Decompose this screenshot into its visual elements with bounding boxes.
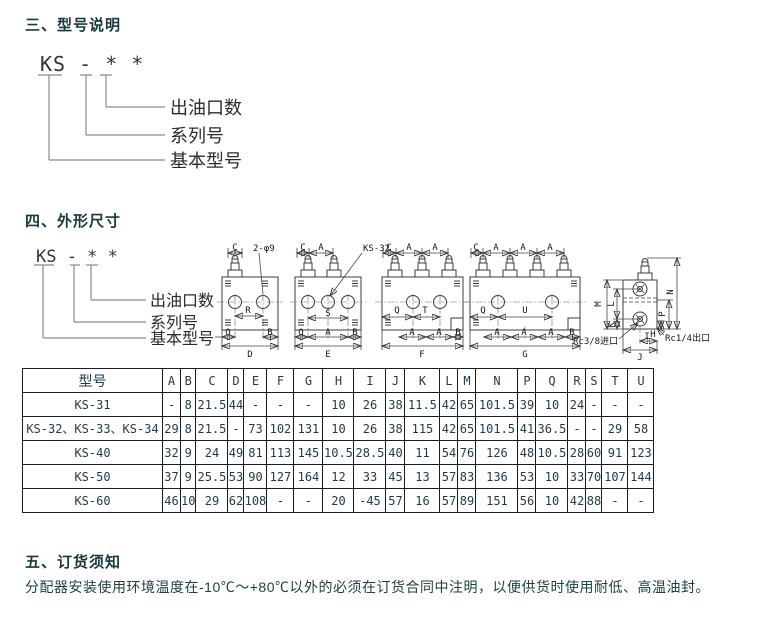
dimension-cell: 9 bbox=[181, 441, 196, 465]
drawing-ks34-front: C A A A Q U A A A B G bbox=[463, 243, 587, 360]
dim-label-q: Q bbox=[225, 328, 230, 338]
label-base-model: 基本型号 bbox=[150, 330, 214, 348]
column-header: G bbox=[294, 369, 323, 393]
dimension-cell: 101.5 bbox=[476, 417, 518, 441]
dimension-cell: 21.5 bbox=[196, 393, 228, 417]
dim-label-f: F bbox=[419, 350, 424, 360]
section-3-heading: 三、型号说明 bbox=[25, 14, 121, 35]
dim-label-u: U bbox=[522, 306, 527, 316]
dimension-drawings: C 2-φ9 R Q B D C A bbox=[215, 238, 781, 363]
dimension-cell: 115 bbox=[405, 417, 440, 441]
dim-label-a: A bbox=[406, 243, 412, 253]
label-series-number: 系列号 bbox=[170, 126, 224, 146]
dim-label-b: B bbox=[455, 328, 460, 338]
dimension-cell: 65 bbox=[458, 393, 476, 417]
dim-label-h: H bbox=[650, 330, 655, 340]
dimension-cell: 9 bbox=[181, 465, 196, 489]
drawing-ks31-front: C 2-φ9 R Q B D bbox=[215, 243, 283, 360]
column-header: K bbox=[405, 369, 440, 393]
dimension-cell: 11 bbox=[405, 441, 440, 465]
dimension-cell: 83 bbox=[458, 465, 476, 489]
column-header: R bbox=[568, 369, 586, 393]
dimension-cell: 62 bbox=[228, 489, 244, 513]
dimension-cell: 24 bbox=[196, 441, 228, 465]
label-series-number: 系列号 bbox=[150, 314, 198, 332]
dimension-cell: - bbox=[294, 393, 323, 417]
dimension-cell: 164 bbox=[294, 465, 323, 489]
dimension-cell: - bbox=[628, 489, 654, 513]
dim-label-a: A bbox=[318, 243, 324, 253]
dimension-cell: 28.5 bbox=[354, 441, 386, 465]
column-header: 型号 bbox=[23, 369, 163, 393]
column-header: C bbox=[196, 369, 228, 393]
dimension-cell: 46 bbox=[163, 489, 181, 513]
dimension-cell: 10 bbox=[536, 465, 568, 489]
dimension-cell: - bbox=[602, 393, 628, 417]
dimension-cell: 53 bbox=[228, 465, 244, 489]
dimension-cell: 42 bbox=[440, 393, 458, 417]
dimension-cell: 81 bbox=[244, 441, 267, 465]
dimension-cell: 8 bbox=[181, 417, 196, 441]
column-header: N bbox=[476, 369, 518, 393]
dimension-cell: 57 bbox=[440, 465, 458, 489]
dimension-cell: 32 bbox=[163, 441, 181, 465]
dimension-cell: - bbox=[163, 393, 181, 417]
section-5-heading: 五、订货须知 bbox=[25, 551, 121, 572]
column-header: I bbox=[354, 369, 386, 393]
dimension-cell: - bbox=[267, 393, 294, 417]
dimension-cell: 12 bbox=[323, 465, 354, 489]
dim-label-a: A bbox=[494, 328, 500, 338]
dimension-cell: 123 bbox=[628, 441, 654, 465]
table-header-row: 型号ABCDEFGHIJKLMNPQRSTU bbox=[23, 369, 654, 393]
dimension-cell: - bbox=[244, 393, 267, 417]
dimension-cell: 57 bbox=[386, 489, 405, 513]
dimension-cell: 26 bbox=[354, 417, 386, 441]
dimension-cell: 113 bbox=[267, 441, 294, 465]
dimension-cell: 42 bbox=[440, 417, 458, 441]
table-row: KS-32、KS-33、KS-3429821.5-731021311026381… bbox=[23, 417, 654, 441]
dim-label-a: A bbox=[547, 243, 553, 253]
dimension-cell: 127 bbox=[267, 465, 294, 489]
hole-callout: 2-φ9 bbox=[253, 244, 275, 254]
dimension-cell: 76 bbox=[458, 441, 476, 465]
model-code-text: KS - * * bbox=[36, 247, 118, 267]
dim-label-j: J bbox=[637, 353, 642, 363]
dimension-cell: 38 bbox=[386, 417, 405, 441]
dimension-cell: 65 bbox=[458, 417, 476, 441]
dim-label-a: A bbox=[521, 328, 527, 338]
column-header: U bbox=[628, 369, 654, 393]
model-code-text: KS - * * bbox=[40, 52, 144, 76]
dimension-cell: 11.5 bbox=[405, 393, 440, 417]
dim-label-q: Q bbox=[298, 328, 303, 338]
dimension-cell: 49 bbox=[228, 441, 244, 465]
dimension-cell: - bbox=[602, 489, 628, 513]
dimension-cell: 101.5 bbox=[476, 393, 518, 417]
dimension-cell: 41 bbox=[518, 417, 536, 441]
dimension-cell: 10.5 bbox=[536, 441, 568, 465]
dim-label-c: C bbox=[300, 243, 305, 253]
dimension-cell: 57 bbox=[440, 489, 458, 513]
dim-label-q: Q bbox=[394, 306, 399, 316]
dimension-cell: 73 bbox=[244, 417, 267, 441]
dimension-cell: 108 bbox=[244, 489, 267, 513]
dimension-cell: 10 bbox=[536, 393, 568, 417]
column-header: E bbox=[244, 369, 267, 393]
model-cell: KS-50 bbox=[23, 465, 163, 489]
column-header: A bbox=[163, 369, 181, 393]
dimension-cell: 131 bbox=[294, 417, 323, 441]
dim-label-t: T bbox=[422, 306, 428, 316]
table-row: KS-6046102962108--20-4557165789151561042… bbox=[23, 489, 654, 513]
dimension-cell: 144 bbox=[628, 465, 654, 489]
drawing-ks32-front: C A KS-32 S Q A B E bbox=[290, 243, 390, 360]
dimension-cell: 48 bbox=[518, 441, 536, 465]
model-code-diagram-large: KS - * * 出油口数 系列号 基本型号 bbox=[30, 45, 280, 190]
dimension-cell: 60 bbox=[586, 441, 602, 465]
table-row: KS-5037925.55390127164123345135783136531… bbox=[23, 465, 654, 489]
dimension-cell: 36.5 bbox=[536, 417, 568, 441]
dimension-cell: 136 bbox=[476, 465, 518, 489]
dimension-cell: 45 bbox=[386, 465, 405, 489]
table-row: KS-31-821.544---10263811.54265101.539102… bbox=[23, 393, 654, 417]
dimension-cell: 39 bbox=[518, 393, 536, 417]
dimension-cell: 151 bbox=[476, 489, 518, 513]
dimension-cell: 44 bbox=[228, 393, 244, 417]
column-header: P bbox=[518, 369, 536, 393]
dim-label-e: E bbox=[325, 350, 330, 360]
dimension-cell: 54 bbox=[440, 441, 458, 465]
dim-label-a: A bbox=[548, 328, 554, 338]
dimension-cell: - bbox=[586, 417, 602, 441]
table-row: KS-4032924498111314510.528.5401154761264… bbox=[23, 441, 654, 465]
dim-label-s: S bbox=[325, 309, 330, 319]
dimension-cell: 20 bbox=[323, 489, 354, 513]
dimension-cell: -45 bbox=[354, 489, 386, 513]
dimension-cell: - bbox=[568, 417, 586, 441]
dim-label-a: A bbox=[325, 328, 331, 338]
dimension-cell: 53 bbox=[518, 465, 536, 489]
dimension-cell: 33 bbox=[354, 465, 386, 489]
column-header: F bbox=[267, 369, 294, 393]
dimension-cell: 10.5 bbox=[323, 441, 354, 465]
dimension-cell: 88 bbox=[586, 489, 602, 513]
dimension-cell: 90 bbox=[244, 465, 267, 489]
column-header: H bbox=[323, 369, 354, 393]
column-header: Q bbox=[536, 369, 568, 393]
dimension-cell: 126 bbox=[476, 441, 518, 465]
dimension-cell: 38 bbox=[386, 393, 405, 417]
dimension-cell: 29 bbox=[602, 417, 628, 441]
dimension-cell: 21.5 bbox=[196, 417, 228, 441]
dimension-cell: 26 bbox=[354, 393, 386, 417]
model-code-tree-lines bbox=[34, 265, 146, 338]
dim-label-p: P bbox=[658, 311, 668, 317]
model-code-tree-lines bbox=[38, 75, 165, 160]
dim-label-k: K bbox=[607, 322, 617, 328]
model-cell: KS-40 bbox=[23, 441, 163, 465]
dimension-cell: 70 bbox=[586, 465, 602, 489]
dimension-cell: 37 bbox=[163, 465, 181, 489]
dimension-cell: 10 bbox=[181, 489, 196, 513]
dimension-cell: 102 bbox=[267, 417, 294, 441]
column-header: B bbox=[181, 369, 196, 393]
dimension-cell: 58 bbox=[628, 417, 654, 441]
column-header: M bbox=[458, 369, 476, 393]
section-4-heading: 四、外形尺寸 bbox=[25, 210, 121, 231]
dimension-cell: 33 bbox=[568, 465, 586, 489]
dimensions-table: 型号ABCDEFGHIJKLMNPQRSTUKS-31-821.544---10… bbox=[22, 368, 654, 513]
dimension-cell: - bbox=[294, 489, 323, 513]
datasheet-page: 三、型号说明 KS - * * 出油口数 系列号 基本型号 四、外形尺寸 KS … bbox=[0, 0, 781, 639]
dimension-cell: 56 bbox=[518, 489, 536, 513]
dim-label-n: N bbox=[666, 289, 676, 294]
dimension-cell: 29 bbox=[196, 489, 228, 513]
dimension-cell: 145 bbox=[294, 441, 323, 465]
dim-label-r: R bbox=[245, 306, 251, 316]
dim-label-a: A bbox=[432, 243, 438, 253]
inlet-port-label: Rc3/8进口 bbox=[573, 336, 618, 347]
dim-label-g: G bbox=[522, 350, 527, 360]
dim-label-m: M bbox=[594, 301, 604, 307]
dimension-cell: 13 bbox=[405, 465, 440, 489]
dimension-cell: - bbox=[628, 393, 654, 417]
outlet-port-label: Rc1/4出口 bbox=[665, 332, 710, 344]
dimension-cell: 40 bbox=[386, 441, 405, 465]
dimension-cell: 24 bbox=[568, 393, 586, 417]
model-cell: KS-31 bbox=[23, 393, 163, 417]
column-header: S bbox=[586, 369, 602, 393]
dim-label-d: D bbox=[247, 350, 252, 360]
dim-label-i: I bbox=[644, 332, 649, 342]
dim-label-l: L bbox=[607, 301, 617, 306]
label-outlet-count: 出油口数 bbox=[150, 292, 214, 310]
dimension-cell: - bbox=[228, 417, 244, 441]
dim-label-b: B bbox=[267, 328, 272, 338]
dimension-cell: 10 bbox=[536, 489, 568, 513]
model-cell: KS-60 bbox=[23, 489, 163, 513]
dim-label-a: A bbox=[493, 243, 499, 253]
dim-label-c: C bbox=[386, 243, 391, 253]
dim-label-b: B bbox=[352, 328, 357, 338]
dimension-cell: - bbox=[586, 393, 602, 417]
drawing-side-view: M L K N P H I J Rc3/8进口 Rc1 bbox=[573, 258, 710, 363]
column-header: T bbox=[602, 369, 628, 393]
column-header: L bbox=[440, 369, 458, 393]
dim-label-c: C bbox=[473, 243, 478, 253]
label-outlet-count: 出油口数 bbox=[170, 98, 242, 118]
dim-label-a: A bbox=[520, 243, 526, 253]
dimension-cell: 29 bbox=[163, 417, 181, 441]
dim-label-c: C bbox=[232, 243, 237, 253]
dimension-cell: 89 bbox=[458, 489, 476, 513]
column-header: D bbox=[228, 369, 244, 393]
label-base-model: 基本型号 bbox=[170, 151, 242, 171]
dim-label-a: A bbox=[409, 328, 415, 338]
drawing-ks33-front: C A A Q T A A B F bbox=[375, 243, 471, 360]
dimension-cell: 8 bbox=[181, 393, 196, 417]
dimension-cell: 10 bbox=[323, 393, 354, 417]
dimension-cell: 25.5 bbox=[196, 465, 228, 489]
dimension-cell: - bbox=[267, 489, 294, 513]
ordering-note-text: 分配器安装使用环境温度在-10℃～+80℃以外的必须在订货合同中注明，以便供货时… bbox=[25, 577, 745, 597]
dimension-cell: 10 bbox=[323, 417, 354, 441]
dimension-cell: 107 bbox=[602, 465, 628, 489]
dimension-cell: 42 bbox=[568, 489, 586, 513]
model-cell: KS-32、KS-33、KS-34 bbox=[23, 417, 163, 441]
dim-label-q: Q bbox=[480, 306, 485, 316]
dimension-cell: 91 bbox=[602, 441, 628, 465]
dimension-cell: 16 bbox=[405, 489, 440, 513]
dimension-cell: 28 bbox=[568, 441, 586, 465]
dim-label-a: A bbox=[436, 328, 442, 338]
column-header: J bbox=[386, 369, 405, 393]
